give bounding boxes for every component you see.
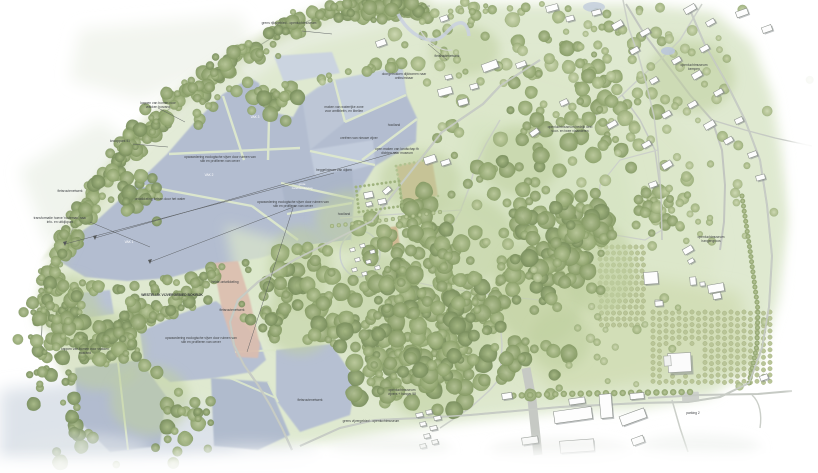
svg-text:hangengroos: hangengroos bbox=[701, 239, 721, 243]
svg-text:info- en uitkijkpunt: info- en uitkijkpunt bbox=[47, 220, 74, 224]
svg-text:kempen: kempen bbox=[688, 67, 700, 71]
svg-text:slib en profileren van oever: slib en profileren van oever bbox=[273, 204, 313, 208]
svg-text:ontwikkeling fietsen door het: ontwikkeling fietsen door het water bbox=[135, 197, 186, 201]
svg-text:vijvers + hangar 98: vijvers + hangar 98 bbox=[388, 392, 416, 396]
svg-text:fietsroutenetwerk: fietsroutenetwerk bbox=[434, 54, 459, 58]
svg-text:hooiland: hooiland bbox=[388, 123, 401, 127]
svg-text:slib en profileren van oever: slib en profileren van oever bbox=[200, 159, 240, 163]
svg-text:vrakken bosrand: vrakken bosrand bbox=[146, 105, 171, 109]
svg-text:heide-ontwikkeling: heide-ontwikkeling bbox=[211, 280, 238, 284]
svg-text:knooppunt 91: knooppunt 91 bbox=[110, 139, 130, 143]
svg-text:creëren van nieuwe vijver: creëren van nieuwe vijver bbox=[340, 136, 378, 140]
svg-text:grens vijvergebied - openlucht: grens vijvergebied - openluchtmuseum bbox=[343, 419, 400, 423]
svg-text:onttruimbaar: onttruimbaar bbox=[395, 76, 414, 80]
svg-text:hooiland: hooiland bbox=[338, 212, 351, 216]
svg-text:grens rijksgebied - openluchtm: grens rijksgebied - openluchtmuseum bbox=[262, 21, 317, 25]
svg-text:fietsroutenetwerk: fietsroutenetwerk bbox=[297, 398, 322, 402]
svg-text:parking 2: parking 2 bbox=[686, 411, 700, 415]
svg-text:bosrand: bosrand bbox=[79, 351, 91, 355]
svg-text:VAK 1: VAK 1 bbox=[125, 240, 134, 244]
svg-text:voor- en twee vlaanderen: voor- en twee vlaanderen bbox=[551, 129, 588, 133]
svg-text:fietsroutenetwerk: fietsroutenetwerk bbox=[219, 308, 244, 312]
svg-text:slib en profileren van oever: slib en profileren van oever bbox=[181, 340, 221, 344]
svg-text:fietsroutenetwerk: fietsroutenetwerk bbox=[57, 189, 82, 193]
svg-text:VAK 2: VAK 2 bbox=[205, 173, 214, 177]
svg-text:heggelinieren van dijken: heggelinieren van dijken bbox=[316, 168, 352, 172]
svg-text:dichten naar museum: dichten naar museum bbox=[381, 151, 413, 155]
svg-text:WESTELIJK VIJVERGEBIED BOKRIJK: WESTELIJK VIJVERGEBIED BOKRIJK bbox=[141, 293, 203, 297]
svg-text:voor amfibieën, en libellen: voor amfibieën, en libellen bbox=[325, 109, 363, 113]
svg-text:VAK 3: VAK 3 bbox=[251, 115, 260, 119]
svg-text:zandverstuiving: zandverstuiving bbox=[292, 186, 313, 190]
